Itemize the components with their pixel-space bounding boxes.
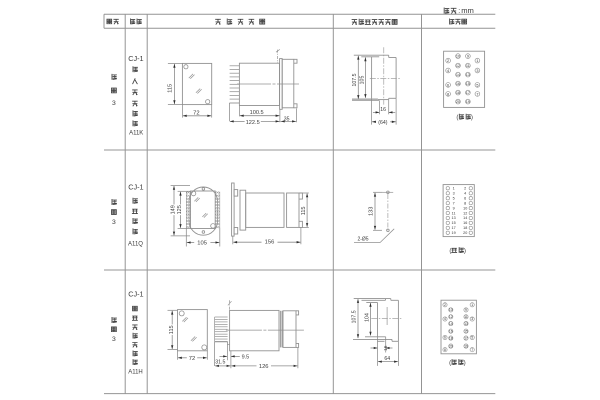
svg-text:126: 126 bbox=[259, 364, 269, 370]
svg-text:5: 5 bbox=[476, 83, 478, 87]
svg-text:2: 2 bbox=[464, 187, 466, 191]
svg-text:100.5: 100.5 bbox=[250, 110, 264, 116]
svg-text:15: 15 bbox=[464, 329, 468, 333]
svg-text:105: 105 bbox=[359, 76, 365, 85]
svg-text:10: 10 bbox=[463, 206, 467, 210]
svg-text:19: 19 bbox=[452, 231, 456, 235]
svg-text:125: 125 bbox=[177, 205, 183, 214]
svg-text:7: 7 bbox=[471, 348, 473, 352]
svg-text:2: 2 bbox=[447, 59, 449, 63]
svg-text:4: 4 bbox=[447, 69, 449, 73]
svg-text:4: 4 bbox=[464, 191, 466, 195]
svg-text:20: 20 bbox=[449, 344, 453, 348]
svg-text:17: 17 bbox=[466, 91, 470, 95]
svg-text:): ) bbox=[464, 359, 466, 366]
svg-text:31.5: 31.5 bbox=[215, 359, 225, 365]
svg-text:): ) bbox=[471, 114, 473, 121]
svg-text:115: 115 bbox=[301, 207, 307, 216]
svg-text:115: 115 bbox=[169, 325, 175, 334]
svg-text:19: 19 bbox=[464, 344, 468, 348]
svg-text:10: 10 bbox=[449, 308, 453, 312]
svg-text:15: 15 bbox=[452, 221, 456, 225]
svg-text:18: 18 bbox=[463, 226, 467, 230]
svg-text:7: 7 bbox=[476, 92, 478, 96]
svg-text:20: 20 bbox=[456, 100, 460, 104]
svg-text:13: 13 bbox=[464, 322, 468, 326]
svg-text:1: 1 bbox=[453, 187, 455, 191]
svg-text:(64): (64) bbox=[378, 120, 387, 126]
svg-text:12: 12 bbox=[463, 211, 467, 215]
svg-text:14: 14 bbox=[449, 322, 453, 326]
svg-text:8: 8 bbox=[444, 348, 446, 352]
svg-text:10: 10 bbox=[456, 54, 460, 58]
svg-text:107.5: 107.5 bbox=[352, 73, 358, 86]
svg-text:11: 11 bbox=[464, 315, 468, 319]
svg-text:12: 12 bbox=[456, 64, 460, 68]
svg-text:4: 4 bbox=[444, 317, 446, 321]
svg-text:35: 35 bbox=[284, 116, 290, 122]
svg-text:16: 16 bbox=[456, 82, 460, 86]
svg-text:14: 14 bbox=[463, 216, 467, 220]
svg-text:122.5: 122.5 bbox=[246, 120, 260, 126]
svg-text:CJ-1: CJ-1 bbox=[128, 290, 143, 299]
svg-text:18: 18 bbox=[456, 91, 460, 95]
svg-text:1: 1 bbox=[476, 59, 478, 63]
svg-text:149: 149 bbox=[171, 205, 177, 214]
svg-text:A11H: A11H bbox=[128, 370, 143, 376]
svg-text:17: 17 bbox=[452, 226, 456, 230]
svg-text:3: 3 bbox=[476, 69, 478, 73]
svg-text:133: 133 bbox=[368, 207, 374, 216]
svg-text:A11K: A11K bbox=[129, 131, 143, 137]
svg-text:107.5: 107.5 bbox=[352, 310, 358, 323]
svg-text:2: 2 bbox=[444, 303, 446, 307]
svg-text:7: 7 bbox=[453, 201, 455, 205]
svg-text:A11Q: A11Q bbox=[128, 242, 143, 248]
svg-text:72: 72 bbox=[193, 110, 199, 116]
svg-text:3: 3 bbox=[471, 317, 473, 321]
svg-text:11: 11 bbox=[466, 64, 470, 68]
svg-text:17: 17 bbox=[464, 336, 468, 340]
svg-text:9: 9 bbox=[465, 308, 467, 312]
svg-text:72: 72 bbox=[189, 356, 195, 362]
svg-text:9.5: 9.5 bbox=[242, 354, 250, 360]
svg-text:CJ-1: CJ-1 bbox=[128, 183, 143, 192]
svg-text:8: 8 bbox=[447, 92, 449, 96]
svg-text:): ) bbox=[464, 247, 466, 254]
svg-text:16: 16 bbox=[380, 107, 386, 113]
svg-text:5: 5 bbox=[453, 196, 455, 200]
svg-text:6: 6 bbox=[447, 83, 449, 87]
svg-text:156: 156 bbox=[265, 240, 275, 246]
svg-text:16: 16 bbox=[383, 345, 389, 351]
svg-text:15: 15 bbox=[466, 82, 470, 86]
svg-text:9: 9 bbox=[453, 206, 455, 210]
svg-text:19: 19 bbox=[466, 100, 470, 104]
svg-text:3: 3 bbox=[453, 191, 455, 195]
svg-text:18: 18 bbox=[449, 336, 453, 340]
svg-text:13: 13 bbox=[466, 73, 470, 77]
svg-text:1: 1 bbox=[471, 303, 473, 307]
svg-text:16: 16 bbox=[449, 329, 453, 333]
svg-text:104: 104 bbox=[364, 313, 370, 322]
svg-text:12: 12 bbox=[449, 315, 453, 319]
svg-text:64: 64 bbox=[384, 356, 390, 362]
svg-text:9: 9 bbox=[467, 54, 469, 58]
svg-text:20: 20 bbox=[463, 231, 467, 235]
svg-text:13: 13 bbox=[452, 216, 456, 220]
svg-text:14: 14 bbox=[456, 73, 460, 77]
svg-text:3: 3 bbox=[112, 336, 116, 343]
svg-text:8: 8 bbox=[464, 201, 466, 205]
svg-text:3: 3 bbox=[112, 100, 116, 107]
svg-text:6: 6 bbox=[464, 196, 466, 200]
svg-text:3: 3 bbox=[112, 219, 116, 226]
svg-text:11: 11 bbox=[452, 211, 456, 215]
svg-text:5: 5 bbox=[471, 336, 473, 340]
svg-text:6: 6 bbox=[444, 336, 446, 340]
svg-text:CJ-1: CJ-1 bbox=[128, 54, 143, 63]
svg-text:2-Ø5: 2-Ø5 bbox=[357, 236, 368, 242]
svg-text:105: 105 bbox=[197, 241, 207, 247]
svg-text:16: 16 bbox=[463, 221, 467, 225]
svg-text:115: 115 bbox=[168, 84, 174, 93]
